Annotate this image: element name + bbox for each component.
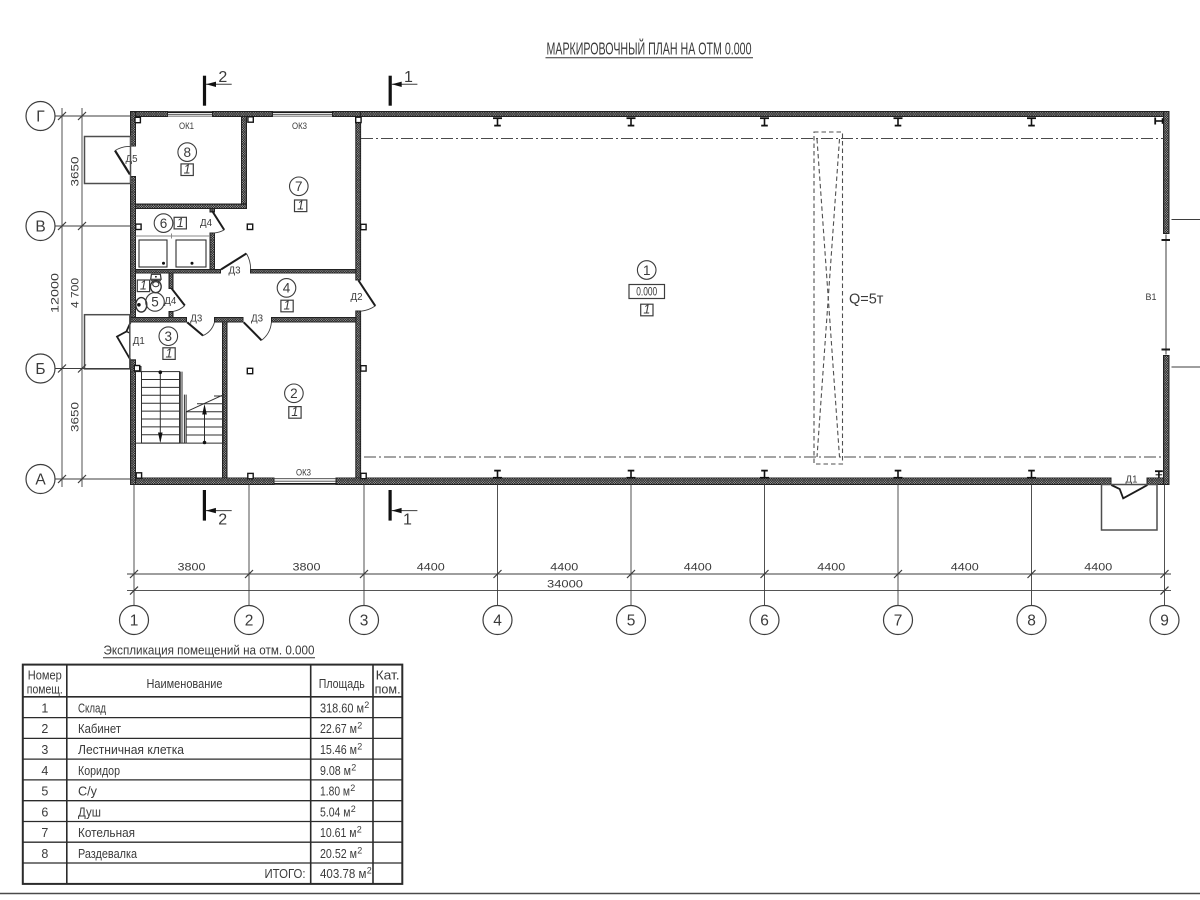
svg-text:Кабинет: Кабинет (78, 722, 121, 736)
svg-text:Экспликация помещений на отм.: Экспликация помещений на отм. 0.000 (104, 643, 315, 658)
svg-text:2: 2 (357, 721, 362, 731)
svg-text:4400: 4400 (684, 562, 712, 574)
svg-text:1: 1 (41, 701, 48, 715)
svg-text:9: 9 (1160, 613, 1169, 630)
svg-text:2: 2 (364, 700, 369, 710)
svg-text:помещ.: помещ. (27, 683, 63, 697)
svg-text:3800: 3800 (293, 562, 321, 574)
svg-text:5: 5 (627, 613, 636, 630)
svg-text:6: 6 (760, 613, 769, 630)
svg-text:2: 2 (218, 69, 227, 86)
svg-text:Номер: Номер (28, 669, 62, 683)
svg-text:2: 2 (357, 845, 362, 855)
svg-text:1: 1 (403, 512, 412, 529)
svg-text:7: 7 (894, 613, 903, 630)
svg-text:1: 1 (140, 279, 147, 293)
svg-text:Кат.: Кат. (376, 669, 400, 683)
svg-text:403.78 м: 403.78 м (320, 867, 367, 881)
svg-text:3: 3 (165, 329, 173, 344)
svg-text:2: 2 (290, 386, 298, 401)
svg-text:Д5: Д5 (126, 154, 138, 165)
svg-text:3: 3 (41, 743, 48, 757)
svg-text:4: 4 (283, 281, 291, 296)
svg-text:пом.: пом. (375, 683, 401, 697)
svg-text:1: 1 (643, 303, 650, 317)
svg-text:1: 1 (297, 199, 304, 213)
svg-text:2: 2 (350, 783, 355, 793)
svg-text:С/у: С/у (78, 785, 98, 799)
svg-text:1: 1 (184, 162, 191, 176)
svg-text:Лестничная клетка: Лестничная клетка (78, 743, 184, 757)
svg-text:3800: 3800 (178, 562, 206, 574)
svg-text:8: 8 (41, 847, 48, 861)
svg-text:2: 2 (357, 742, 362, 752)
svg-text:2: 2 (351, 762, 356, 772)
svg-text:Наименование: Наименование (147, 677, 223, 691)
svg-text:8: 8 (183, 145, 191, 160)
svg-text:6: 6 (160, 216, 168, 231)
svg-text:А: А (35, 472, 46, 489)
svg-text:7: 7 (295, 179, 303, 194)
svg-text:5: 5 (41, 785, 48, 799)
svg-text:1: 1 (404, 69, 413, 86)
svg-text:10.61 м: 10.61 м (320, 826, 357, 840)
svg-text:3650: 3650 (70, 402, 82, 432)
svg-text:Д3: Д3 (190, 313, 202, 324)
svg-text:4400: 4400 (817, 562, 845, 574)
svg-text:4: 4 (493, 613, 502, 630)
svg-text:1: 1 (166, 346, 173, 360)
svg-text:Д1: Д1 (133, 336, 145, 347)
svg-text:Д3: Д3 (251, 313, 263, 324)
svg-text:Коридор: Коридор (78, 764, 120, 778)
svg-text:15.46 м: 15.46 м (320, 743, 357, 757)
svg-text:2: 2 (41, 722, 48, 736)
svg-text:Q=5т: Q=5т (849, 292, 884, 308)
svg-text:2: 2 (245, 613, 254, 630)
svg-text:Г: Г (36, 109, 45, 126)
svg-text:Б: Б (35, 361, 45, 378)
svg-text:В: В (35, 219, 45, 236)
svg-text:Котельная: Котельная (78, 826, 135, 840)
svg-text:2: 2 (367, 866, 372, 876)
svg-text:2: 2 (357, 825, 362, 835)
svg-text:Д4: Д4 (164, 296, 176, 307)
svg-text:1: 1 (177, 216, 184, 230)
svg-text:1: 1 (284, 299, 291, 313)
svg-text:ИТОГО:: ИТОГО: (265, 867, 306, 881)
svg-text:4400: 4400 (1084, 562, 1112, 574)
svg-text:ОК3: ОК3 (292, 121, 307, 132)
svg-text:2: 2 (351, 804, 356, 814)
svg-text:9.08 м: 9.08 м (320, 764, 351, 778)
svg-text:3: 3 (360, 613, 369, 630)
svg-text:4: 4 (41, 764, 48, 778)
svg-text:2: 2 (218, 512, 227, 529)
svg-text:7: 7 (41, 826, 48, 840)
svg-text:4 700: 4 700 (70, 278, 82, 308)
svg-text:1.80 м: 1.80 м (320, 785, 350, 799)
svg-text:318.60 м: 318.60 м (320, 701, 364, 715)
svg-text:Склад: Склад (78, 701, 107, 715)
svg-text:6: 6 (41, 805, 48, 819)
svg-text:34000: 34000 (547, 578, 583, 590)
svg-text:1: 1 (130, 613, 139, 630)
svg-text:В1: В1 (1146, 292, 1157, 303)
svg-text:МАРКИРОВОЧНЫЙ ПЛАН НА ОТМ 0.00: МАРКИРОВОЧНЫЙ ПЛАН НА ОТМ 0.000 (547, 38, 752, 59)
svg-text:4400: 4400 (417, 562, 445, 574)
svg-text:Площадь: Площадь (319, 677, 365, 691)
svg-text:12000: 12000 (50, 273, 62, 313)
svg-text:3650: 3650 (70, 157, 82, 187)
svg-text:ОК1: ОК1 (179, 121, 194, 132)
svg-text:Раздевалка: Раздевалка (78, 847, 137, 861)
svg-text:4400: 4400 (550, 562, 578, 574)
svg-text:20.52 м: 20.52 м (320, 847, 357, 861)
svg-text:5.04 м: 5.04 м (320, 805, 351, 819)
svg-text:0.000: 0.000 (636, 287, 657, 299)
svg-text:1: 1 (291, 405, 298, 419)
svg-text:1: 1 (643, 263, 651, 278)
svg-text:Д2: Д2 (351, 292, 363, 303)
svg-text:Д4: Д4 (200, 218, 212, 229)
svg-text:Душ: Душ (78, 805, 101, 819)
svg-text:Д3: Д3 (229, 266, 241, 277)
svg-text:5: 5 (151, 295, 159, 310)
svg-text:8: 8 (1027, 613, 1036, 630)
svg-text:4400: 4400 (951, 562, 979, 574)
svg-text:22.67 м: 22.67 м (320, 722, 357, 736)
svg-text:ОК3: ОК3 (296, 468, 311, 479)
